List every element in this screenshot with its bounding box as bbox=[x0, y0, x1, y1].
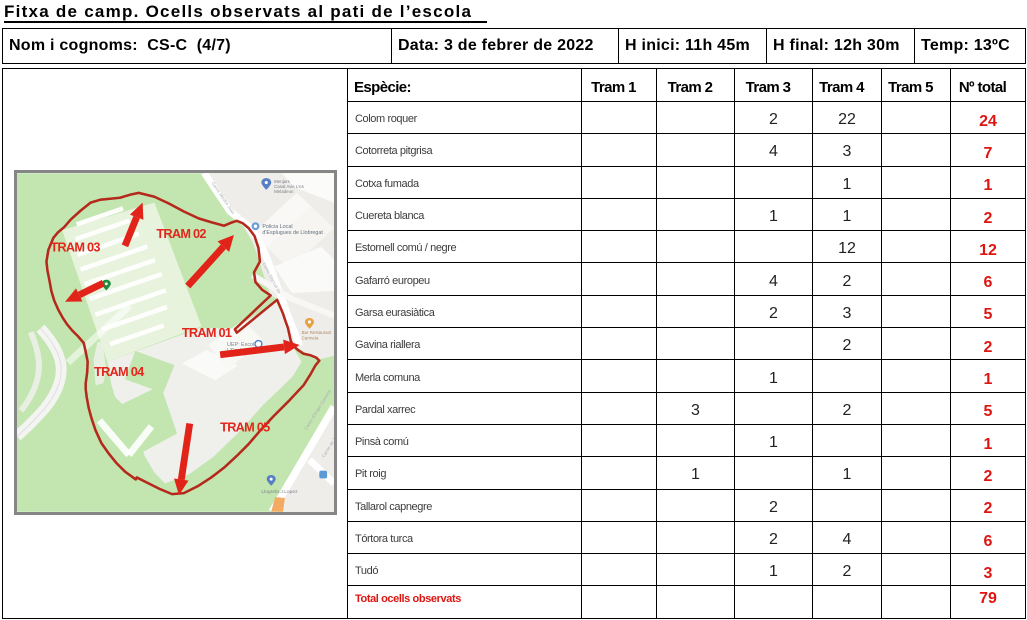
svg-text:TRAM 04: TRAM 04 bbox=[94, 364, 145, 379]
svg-text:Meladeon: Meladeon bbox=[274, 189, 294, 194]
svg-text:TRAM 05: TRAM 05 bbox=[220, 419, 270, 434]
svg-text:TRAM 03: TRAM 03 bbox=[50, 240, 100, 255]
svg-text:Bar Restaurant: Bar Restaurant bbox=[302, 330, 332, 335]
svg-text:Carmeta: Carmeta bbox=[302, 336, 319, 341]
svg-text:Llogrefa J.Lopez: Llogrefa J.Lopez bbox=[261, 489, 298, 495]
svg-text:d'Esplugues de Llobregat: d'Esplugues de Llobregat bbox=[262, 230, 323, 236]
svg-text:TRAM 01: TRAM 01 bbox=[182, 325, 232, 340]
svg-text:TRAM 02: TRAM 02 bbox=[156, 226, 206, 241]
